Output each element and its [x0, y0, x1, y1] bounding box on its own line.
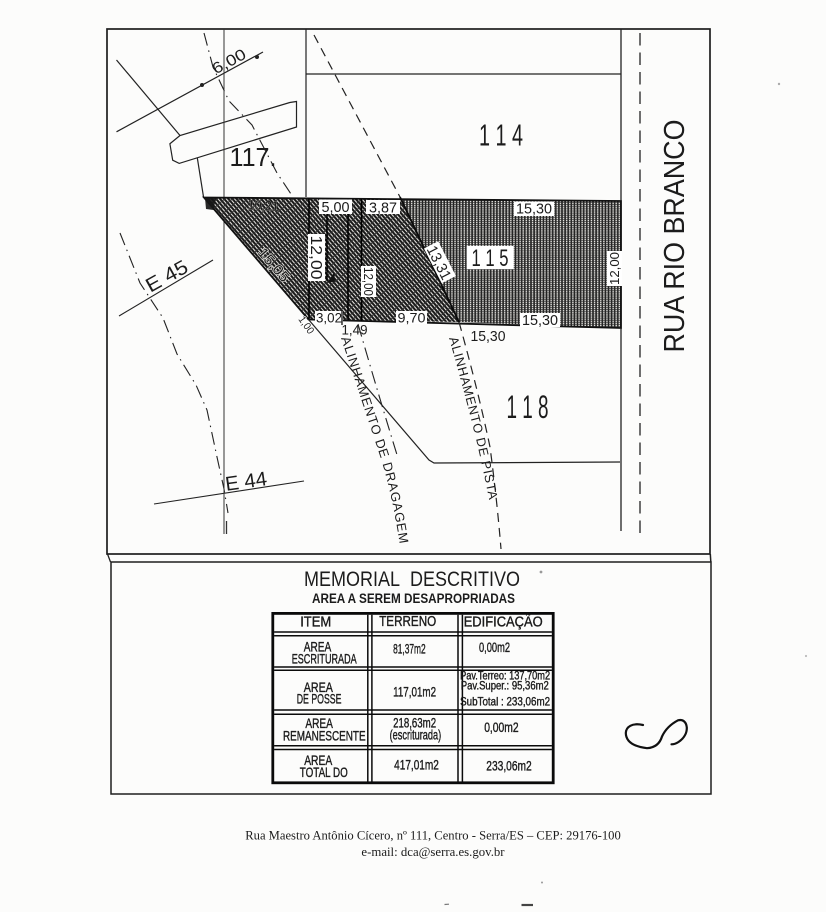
svg-text:MEMORIAL DESCRITIVO: MEMORIAL DESCRITIVO	[304, 568, 520, 591]
svg-text:3,02: 3,02	[316, 310, 342, 326]
svg-text:e-mail: dca@serra.es.gov.br: e-mail: dca@serra.es.gov.br	[361, 845, 505, 859]
svg-text:15,30: 15,30	[516, 201, 552, 218]
svg-text:15,30: 15,30	[522, 312, 558, 329]
svg-text:(escriturada): (escriturada)	[390, 727, 442, 743]
svg-text:117.: 117.	[230, 142, 277, 172]
svg-text:233,06m2: 233,06m2	[486, 757, 532, 773]
svg-text:117,01m2: 117,01m2	[393, 683, 436, 699]
svg-text:1 1 4: 1 1 4	[479, 118, 523, 153]
svg-text:12,00: 12,00	[307, 236, 324, 280]
svg-text:RUA RIO BRANCO: RUA RIO BRANCO	[659, 120, 691, 353]
svg-text:TERRENO: TERRENO	[379, 613, 436, 630]
svg-text:3,87: 3,87	[369, 200, 397, 217]
svg-text:REMANESCENTE: REMANESCENTE	[283, 727, 366, 743]
svg-text:1,49: 1,49	[342, 322, 368, 338]
svg-text:81,37m2: 81,37m2	[393, 640, 426, 656]
svg-text:ESCRITURADA: ESCRITURADA	[292, 650, 357, 666]
svg-text:TOTAL DO: TOTAL DO	[300, 764, 348, 780]
svg-text:1 1 8: 1 1 8	[507, 389, 549, 425]
svg-text:10,21: 10,21	[247, 197, 279, 214]
svg-text:Pav.Super.: 95,36m2: Pav.Super.: 95,36m2	[461, 679, 549, 693]
svg-text:15,30: 15,30	[471, 329, 506, 345]
svg-text:AREA A SEREM DESAPROPRIADAS: AREA A SEREM DESAPROPRIADAS	[312, 591, 515, 606]
svg-text:ITEM: ITEM	[300, 613, 331, 630]
svg-text:0,00m2: 0,00m2	[479, 639, 510, 655]
svg-text:DE POSSE: DE POSSE	[297, 691, 342, 707]
svg-text:5,00: 5,00	[322, 199, 350, 216]
svg-text:SubTotal : 233,06m2: SubTotal : 233,06m2	[460, 694, 550, 708]
svg-text:EDIFICAÇÃO: EDIFICAÇÃO	[464, 613, 543, 630]
svg-text:0,00m2: 0,00m2	[484, 719, 519, 735]
svg-text:12,00: 12,00	[361, 267, 376, 296]
svg-text:417,01m2: 417,01m2	[394, 757, 439, 773]
svg-text:9,70: 9,70	[398, 310, 426, 326]
svg-text:1 1 5: 1 1 5	[472, 245, 509, 272]
svg-text:Rua Maestro Antônio Cícero, nº: Rua Maestro Antônio Cícero, nº 111, Cent…	[245, 829, 621, 843]
svg-text:12,00: 12,00	[607, 252, 622, 285]
